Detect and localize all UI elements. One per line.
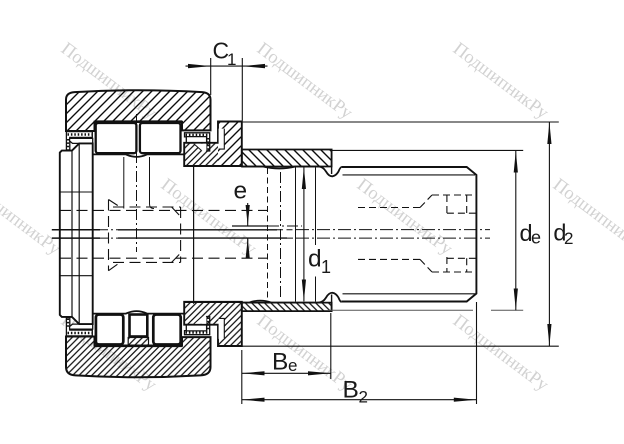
svg-text:1: 1 [227, 50, 236, 69]
svg-text:2: 2 [359, 388, 368, 407]
svg-text:e: e [288, 356, 297, 375]
svg-text:e: e [531, 228, 541, 248]
svg-text:B: B [272, 349, 288, 376]
svg-text:B: B [343, 377, 359, 404]
svg-text:d: d [308, 246, 322, 273]
svg-text:1: 1 [321, 257, 331, 277]
svg-text:e: e [234, 177, 248, 204]
svg-text:2: 2 [564, 229, 573, 248]
